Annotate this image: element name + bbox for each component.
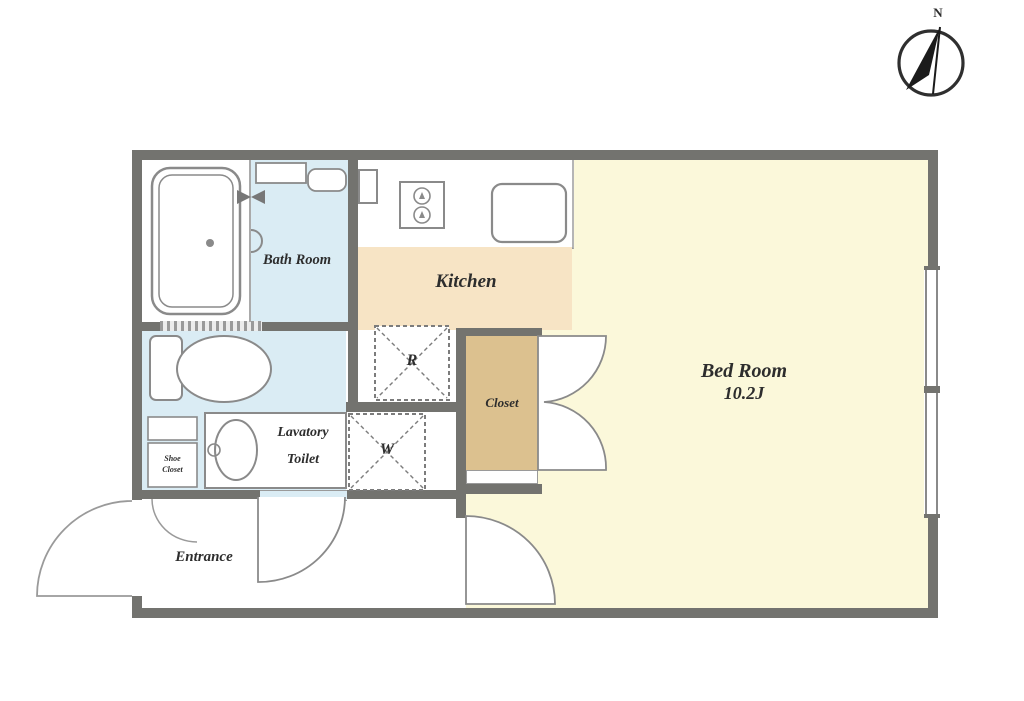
pipe-shaft-box: [359, 170, 377, 203]
fixtures-layer: [0, 0, 1024, 701]
bathtub-icon: [152, 168, 240, 314]
compass-icon: [899, 27, 963, 95]
shower-control-icon: [251, 230, 262, 252]
bed-room-label: Bed Room 10.2J: [664, 360, 824, 404]
entrance-door-swing: [37, 501, 132, 596]
toilet-icon: [150, 336, 271, 402]
kitchen-sink-icon: [492, 184, 566, 242]
closet-label: Closet: [452, 396, 552, 411]
stove-icon: [400, 182, 444, 228]
toilet-line: Toilet: [243, 446, 363, 473]
washer-label: W: [367, 441, 407, 459]
bath-fixtures: [251, 163, 346, 252]
lavatory-toilet-label: Lavatory Toilet: [243, 419, 363, 473]
shoe-closet-label: Shoe Closet: [148, 453, 197, 475]
bed-room-name: Bed Room: [664, 360, 824, 383]
shoe-closet-line: Closet: [148, 464, 197, 475]
kitchen-label: Kitchen: [406, 271, 526, 293]
floor-plan: Bath Room Kitchen Bed Room 10.2J Lavator…: [0, 0, 1024, 701]
shoe-closet-boxes: [148, 417, 197, 487]
bath-room-label: Bath Room: [237, 252, 357, 269]
refrigerator-label: R: [392, 352, 432, 370]
bed-room-size: 10.2J: [664, 383, 824, 404]
shoe-line: Shoe: [148, 453, 197, 464]
lavatory-door-swing: [258, 497, 345, 582]
compass-north-label: N: [922, 6, 954, 21]
lavatory-line: Lavatory: [243, 419, 363, 446]
shoe-closet-door-swing: [152, 499, 197, 542]
entrance-label: Entrance: [144, 549, 264, 566]
bedroom-door-swing: [466, 516, 555, 604]
